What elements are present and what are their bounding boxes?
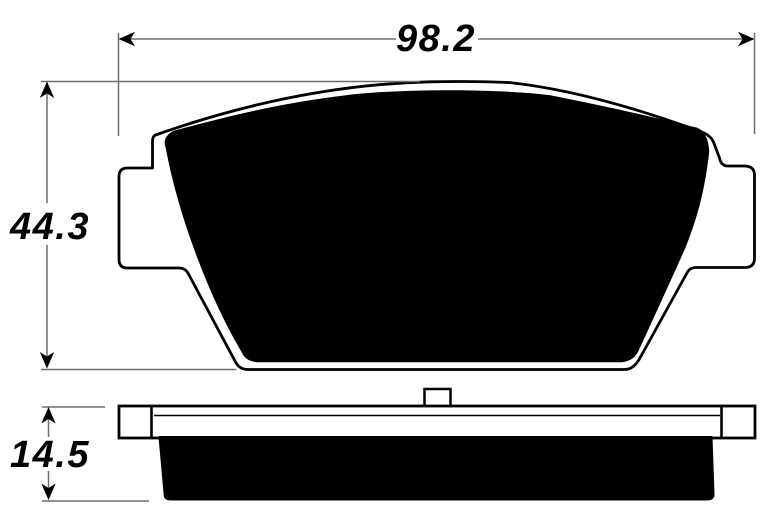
svg-text:14.5: 14.5: [10, 434, 90, 476]
svg-text:98.2: 98.2: [396, 18, 476, 60]
svg-text:44.3: 44.3: [9, 206, 90, 248]
